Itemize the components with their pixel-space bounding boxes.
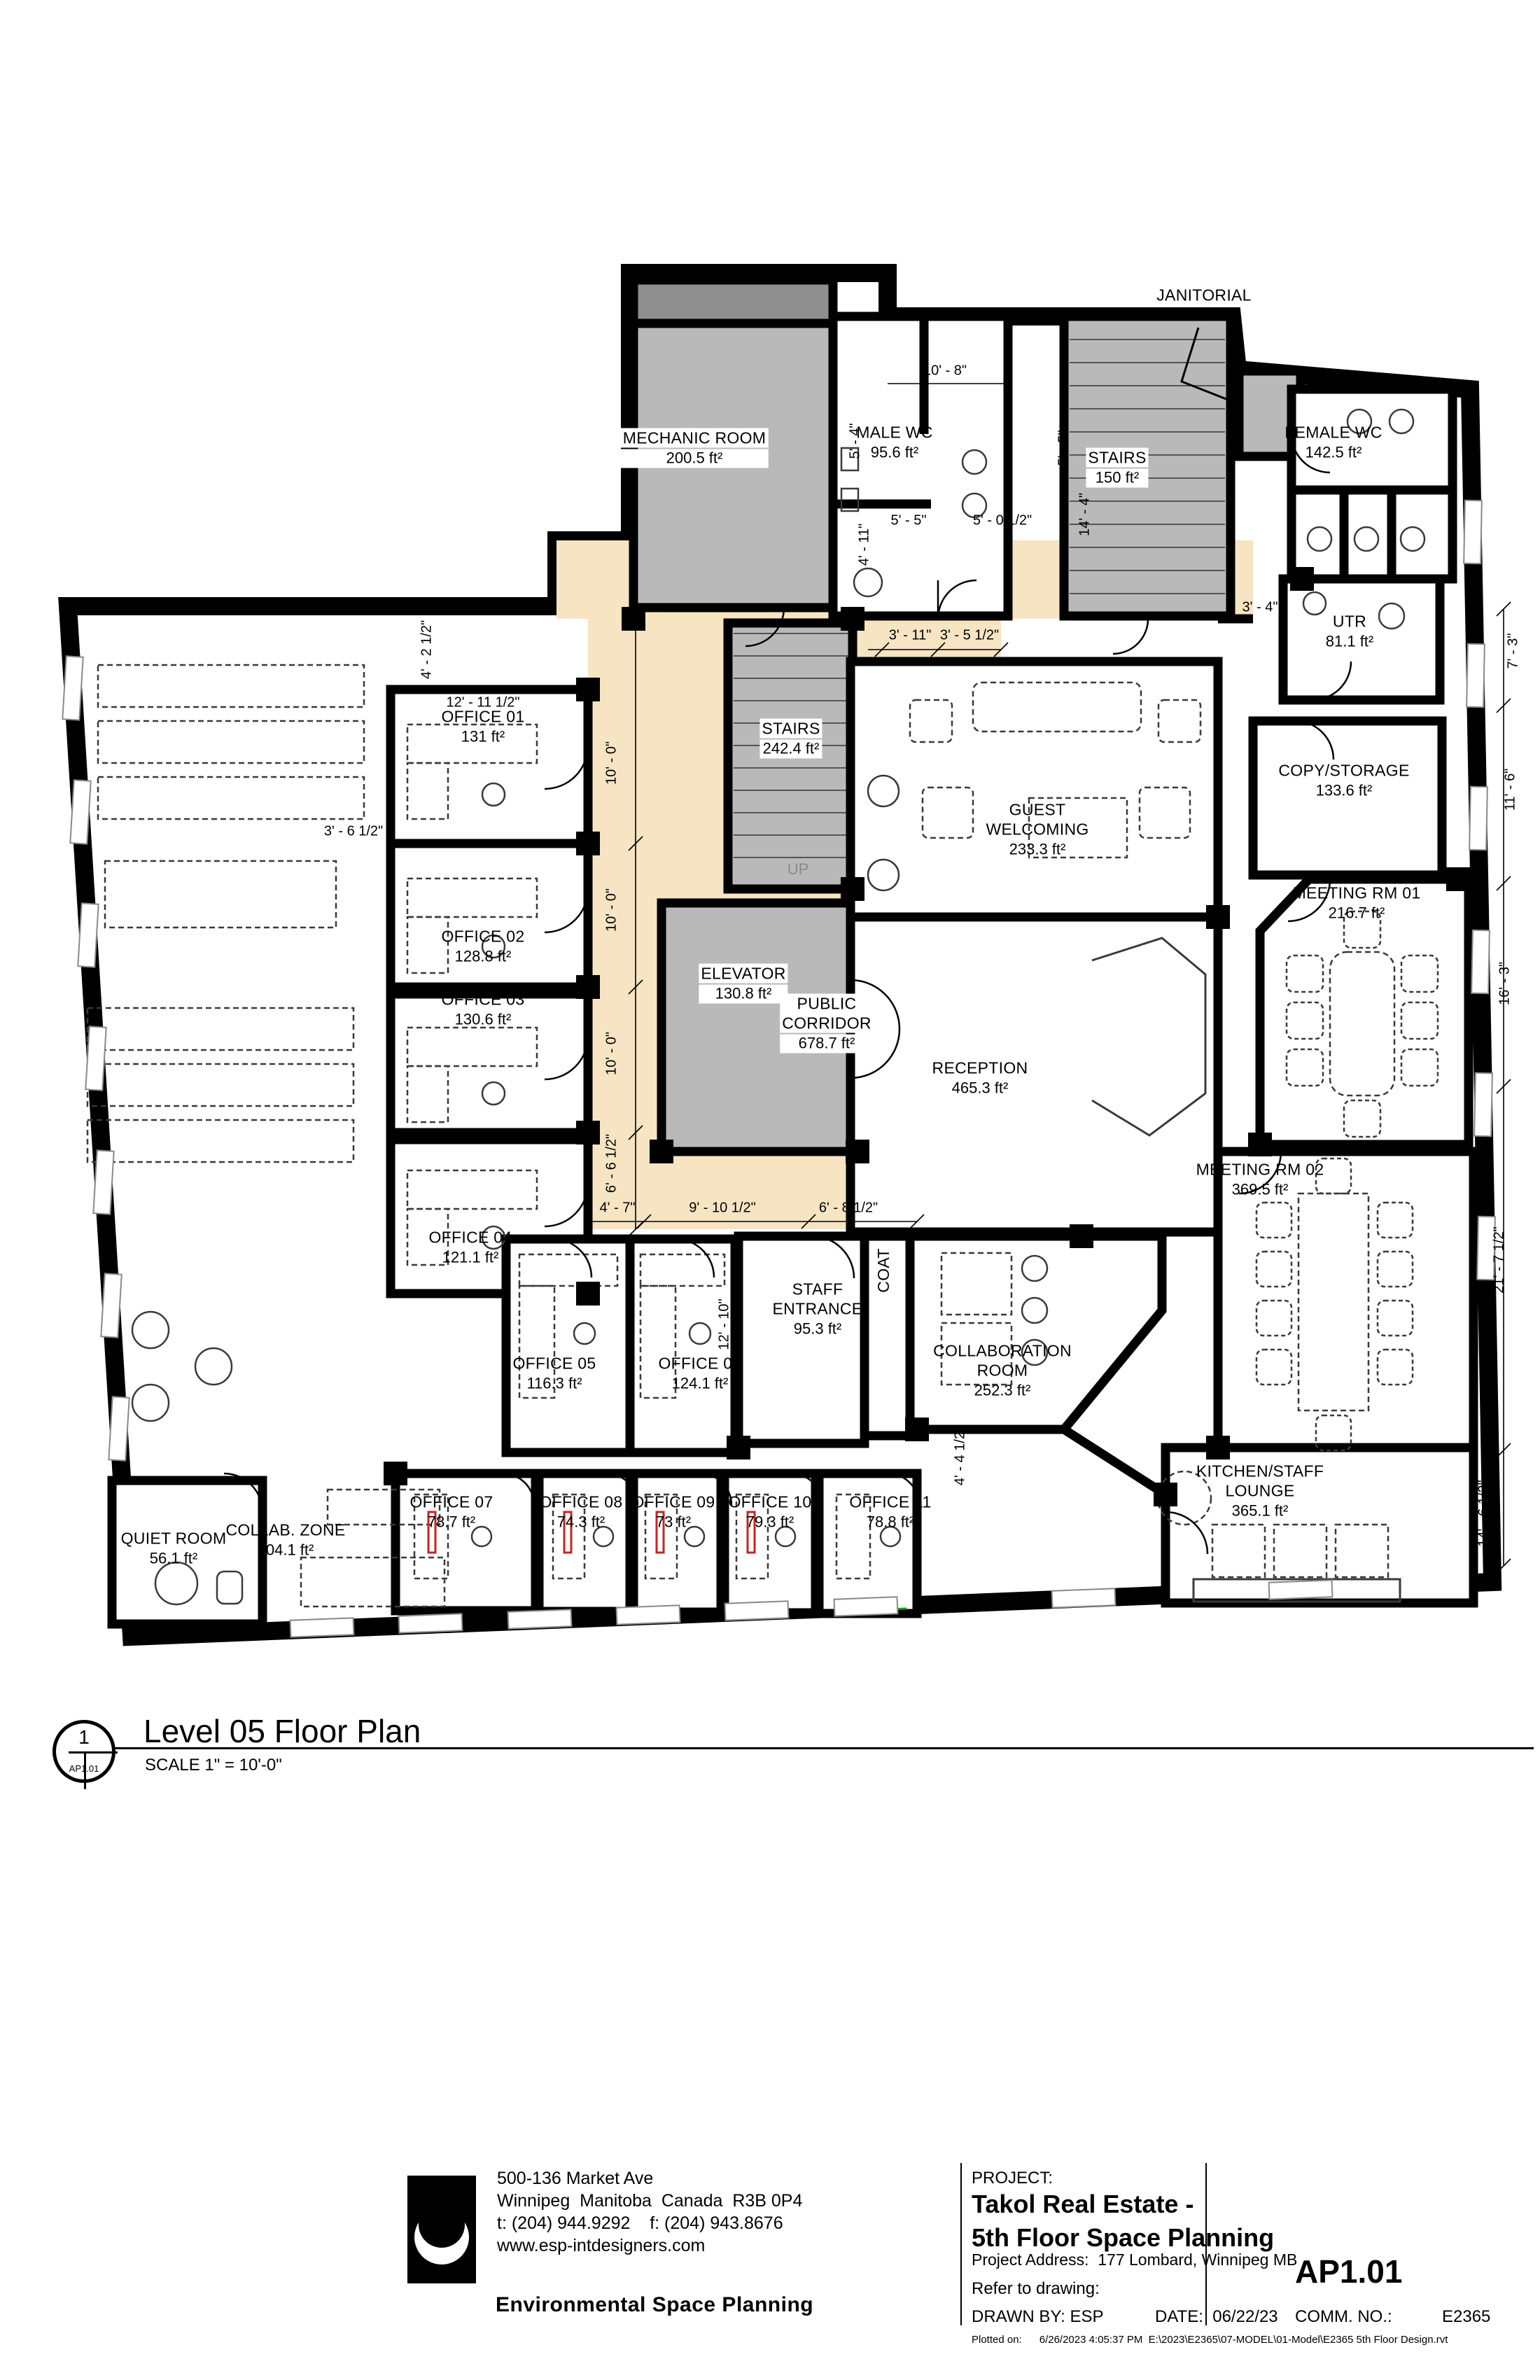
drawing-title: Level 05 Floor Plan bbox=[143, 1712, 421, 1750]
room-area: 242.4 ft² bbox=[759, 740, 822, 759]
room-area: 133.6 ft² bbox=[1278, 782, 1409, 801]
room-area: 19.8 ft² bbox=[1156, 307, 1252, 325]
room-area: 78.7 ft² bbox=[409, 1513, 493, 1532]
room-name: JANITORIAL bbox=[1156, 286, 1252, 305]
dimension-label: 12' - 10" bbox=[717, 1298, 733, 1350]
room-name: RECEPTION bbox=[932, 1058, 1028, 1078]
plotted-on: Plotted on: 6/26/2023 4:05:37 PM E:\2023… bbox=[972, 2334, 1448, 2346]
staff-entrance bbox=[738, 1236, 864, 1443]
dimension-label: 6' - 8 1/2" bbox=[819, 1200, 878, 1217]
room-area: 130.6 ft² bbox=[441, 1011, 524, 1030]
room-label: RECEPTION465.3 ft² bbox=[932, 1058, 1028, 1098]
dimension-label: 14' - 6 1/2" bbox=[1476, 1480, 1492, 1546]
room-name: OFFICE 07 bbox=[409, 1492, 493, 1512]
project-name-line1: Takol Real Estate - bbox=[972, 2190, 1193, 2219]
firm-name: Environmental Space Planning bbox=[496, 2293, 813, 2317]
drawing-scale: SCALE 1" = 10'-0" bbox=[145, 1756, 282, 1775]
dimension-label: 21' - 7 1/2" bbox=[1492, 1226, 1508, 1293]
project-address: Project Address: 177 Lombard, Winnipeg M… bbox=[972, 2250, 1297, 2269]
detail-number: 1 bbox=[56, 1726, 112, 1749]
room-label: OFFICE 04121.1 ft² bbox=[428, 1228, 512, 1268]
room-label: MEETING RM 01216.7 ft² bbox=[1293, 883, 1421, 923]
titleblock-divider-1 bbox=[960, 2163, 962, 2325]
room-label: MEETING RM 02369.5 ft² bbox=[1196, 1160, 1324, 1200]
room-area: 365.1 ft² bbox=[1196, 1502, 1324, 1521]
room-label: COPY/STORAGE133.6 ft² bbox=[1278, 761, 1409, 801]
project-name-line2: 5th Floor Space Planning bbox=[972, 2223, 1274, 2253]
date: DATE: 06/22/23 bbox=[1155, 2307, 1278, 2327]
room-area: 465.3 ft² bbox=[932, 1079, 1028, 1098]
dimension-label: 4' - 7" bbox=[600, 1200, 636, 1217]
dimension-label: 10' - 0" bbox=[604, 741, 620, 785]
detail-marker: 1 AP1.01 bbox=[52, 1720, 115, 1783]
room-area: 74.3 ft² bbox=[539, 1513, 622, 1532]
room-name: COPY/STORAGE bbox=[1278, 761, 1409, 780]
room-name: STAIRS bbox=[759, 719, 822, 738]
mechanic-shaft bbox=[633, 280, 833, 323]
room-label: COLLABORATION ROOM252.3 ft² bbox=[933, 1341, 1072, 1401]
room-name: COAT bbox=[874, 1248, 893, 1292]
room-label: OFFICE 01131 ft² bbox=[441, 707, 524, 747]
dimension-label: 3' - 5 1/2" bbox=[940, 628, 999, 644]
room-name: PUBLIC CORRIDOR bbox=[780, 994, 874, 1033]
room-label: JANITORIAL19.8 ft² bbox=[1156, 286, 1252, 325]
room-area: 233.3 ft² bbox=[986, 841, 1088, 860]
floor-plan-sheet: MECHANIC ROOM200.5 ft²MALE WC95.6 ft²STA… bbox=[0, 0, 1540, 2380]
room-name: MALE WC bbox=[856, 423, 932, 442]
room-name: OFFICE 11 bbox=[849, 1492, 931, 1512]
room-area: 79.3 ft² bbox=[728, 1513, 811, 1532]
room-area: 121.1 ft² bbox=[428, 1249, 512, 1268]
room-label: KITCHEN/STAFF LOUNGE365.1 ft² bbox=[1196, 1462, 1324, 1521]
room-name: STAIRS bbox=[1086, 448, 1148, 468]
room-area: 150 ft² bbox=[1086, 469, 1148, 488]
dimension-label: 10' - 0" bbox=[604, 888, 620, 932]
room-area: 252.3 ft² bbox=[933, 1382, 1072, 1401]
room-area: 116.3 ft² bbox=[512, 1375, 596, 1394]
project-label: PROJECT: bbox=[972, 2169, 1053, 2188]
drawn-by: DRAWN BY: ESP bbox=[972, 2307, 1103, 2327]
room-label: OFFICE 0973 ft² bbox=[631, 1492, 715, 1532]
dimension-label: 3' - 11" bbox=[889, 628, 932, 644]
room-label: OFFICE 1178.8 ft² bbox=[849, 1492, 931, 1532]
room-area: 130.8 ft² bbox=[699, 985, 787, 1004]
room-area: 81.1 ft² bbox=[1326, 633, 1373, 652]
room-name: OFFICE 04 bbox=[428, 1228, 512, 1247]
room-label: OFFICE 1079.3 ft² bbox=[728, 1492, 811, 1532]
room-label: ELEVATOR130.8 ft² bbox=[699, 964, 787, 1004]
dimension-label: 11' - 6" bbox=[1503, 769, 1519, 811]
room-label: OFFICE 06124.1 ft² bbox=[658, 1354, 741, 1394]
dimension-label: 10' - 0" bbox=[604, 1032, 620, 1075]
room-label: MALE WC95.6 ft² bbox=[856, 423, 932, 463]
room-name: OFFICE 02 bbox=[441, 927, 524, 946]
dimension-label: 4' - 2 1/2" bbox=[419, 620, 435, 679]
room-area: 131 ft² bbox=[441, 728, 524, 747]
room-name: MEETING RM 01 bbox=[1293, 883, 1421, 903]
room-area: 104.1 ft² bbox=[225, 1541, 345, 1560]
room-label: OFFICE 0874.3 ft² bbox=[539, 1492, 622, 1532]
dimension-label: 9' - 10 1/2" bbox=[689, 1200, 755, 1217]
crescent-moon-icon bbox=[407, 2176, 476, 2283]
room-label: OFFICE 02128.8 ft² bbox=[441, 927, 524, 967]
room-area: 73 ft² bbox=[631, 1513, 715, 1532]
room-label: FEMALE WC142.5 ft² bbox=[1284, 423, 1382, 463]
room-area: 678.7 ft² bbox=[780, 1035, 874, 1053]
comm-no-value: E2365 bbox=[1442, 2307, 1490, 2327]
dimension-label: 3' - 4" bbox=[1242, 600, 1278, 616]
room-area: 128.8 ft² bbox=[441, 948, 524, 967]
comm-no-label: COMM. NO.: bbox=[1295, 2307, 1392, 2327]
room-name: QUIET ROOM bbox=[121, 1529, 227, 1548]
firm-address: 500-136 Market AveWinnipeg Manitoba Cana… bbox=[497, 2167, 802, 2257]
room-name: OFFICE 10 bbox=[728, 1492, 811, 1512]
room-label: STAIRS150 ft² bbox=[1086, 448, 1148, 488]
room-label: PUBLIC CORRIDOR678.7 ft² bbox=[780, 994, 874, 1053]
dimension-label: 7' - 3" bbox=[1506, 633, 1522, 669]
room-area: 78.8 ft² bbox=[849, 1513, 931, 1532]
dimension-label: 5' - 4" bbox=[848, 423, 864, 459]
room-name: UTR bbox=[1326, 612, 1373, 631]
room-label: OFFICE 03130.6 ft² bbox=[441, 990, 524, 1030]
room-label: COLLAB. ZONE104.1 ft² bbox=[225, 1520, 345, 1560]
room-name: STAFF ENTRANCE bbox=[773, 1280, 863, 1319]
room-name: OFFICE 08 bbox=[539, 1492, 622, 1512]
dimension-label: 12' - 11 1/2" bbox=[446, 695, 519, 711]
room-name: OFFICE 05 bbox=[512, 1354, 596, 1373]
room-name: GUEST WELCOMING bbox=[986, 800, 1088, 839]
room-name: COLLAB. ZONE bbox=[225, 1520, 345, 1540]
room-area: 142.5 ft² bbox=[1284, 444, 1382, 463]
room-name: OFFICE 03 bbox=[441, 990, 524, 1009]
dimension-label: 10' - 8" bbox=[923, 363, 967, 379]
dimension-label: 4' - 11" bbox=[857, 524, 873, 566]
esp-logo bbox=[407, 2176, 476, 2283]
office-05 bbox=[506, 1239, 630, 1452]
room-name: MECHANIC ROOM bbox=[621, 428, 769, 448]
room-name: ELEVATOR bbox=[699, 964, 787, 983]
room-name: OFFICE 06 bbox=[658, 1354, 741, 1373]
room-label: GUEST WELCOMING233.3 ft² bbox=[986, 800, 1088, 860]
detail-sheet-ref: AP1.01 bbox=[56, 1763, 112, 1774]
dimension-label: 14' - 4" bbox=[1077, 493, 1093, 536]
room-label: STAFF ENTRANCE95.3 ft² bbox=[773, 1280, 863, 1339]
sheet-number: AP1.01 bbox=[1295, 2253, 1402, 2290]
room-area: 56.1 ft² bbox=[121, 1550, 227, 1569]
room-area: 369.5 ft² bbox=[1196, 1181, 1324, 1200]
room-area: 95.3 ft² bbox=[773, 1320, 863, 1339]
room-label: OFFICE 05116.3 ft² bbox=[512, 1354, 596, 1394]
room-area: 200.5 ft² bbox=[621, 449, 769, 468]
room-name: COLLABORATION ROOM bbox=[933, 1341, 1072, 1380]
dimension-label: 16' - 3" bbox=[1497, 962, 1513, 1005]
dimension-label: 5' - 0 1/2" bbox=[973, 513, 1032, 529]
reception bbox=[850, 917, 1218, 1232]
dimension-label: 3' - 6 1/2" bbox=[324, 824, 383, 840]
dimension-label: 5' - 5" bbox=[891, 513, 927, 529]
dimension-label: 4' - 4 1/2" bbox=[953, 1427, 969, 1485]
room-name: MEETING RM 02 bbox=[1196, 1160, 1324, 1179]
room-label: QUIET ROOM56.1 ft² bbox=[121, 1529, 227, 1569]
room-area: 95.6 ft² bbox=[856, 444, 932, 463]
stair-direction-label: UP bbox=[787, 860, 809, 878]
dimension-label: 5' - 5" bbox=[1056, 430, 1072, 466]
dimension-label: 6' - 6 1/2" bbox=[604, 1134, 620, 1193]
room-name: KITCHEN/STAFF LOUNGE bbox=[1196, 1462, 1324, 1501]
room-area: 216.7 ft² bbox=[1293, 904, 1421, 923]
refer-to-drawing: Refer to drawing: bbox=[972, 2279, 1100, 2299]
room-label: MECHANIC ROOM200.5 ft² bbox=[621, 428, 769, 468]
room-label: COAT bbox=[874, 1248, 893, 1292]
room-name: OFFICE 09 bbox=[631, 1492, 715, 1512]
room-name: FEMALE WC bbox=[1284, 423, 1382, 442]
room-area: 124.1 ft² bbox=[658, 1375, 741, 1394]
room-label: STAIRS242.4 ft² bbox=[759, 719, 822, 759]
room-label: OFFICE 0778.7 ft² bbox=[409, 1492, 493, 1532]
room-label: UTR81.1 ft² bbox=[1326, 612, 1373, 652]
